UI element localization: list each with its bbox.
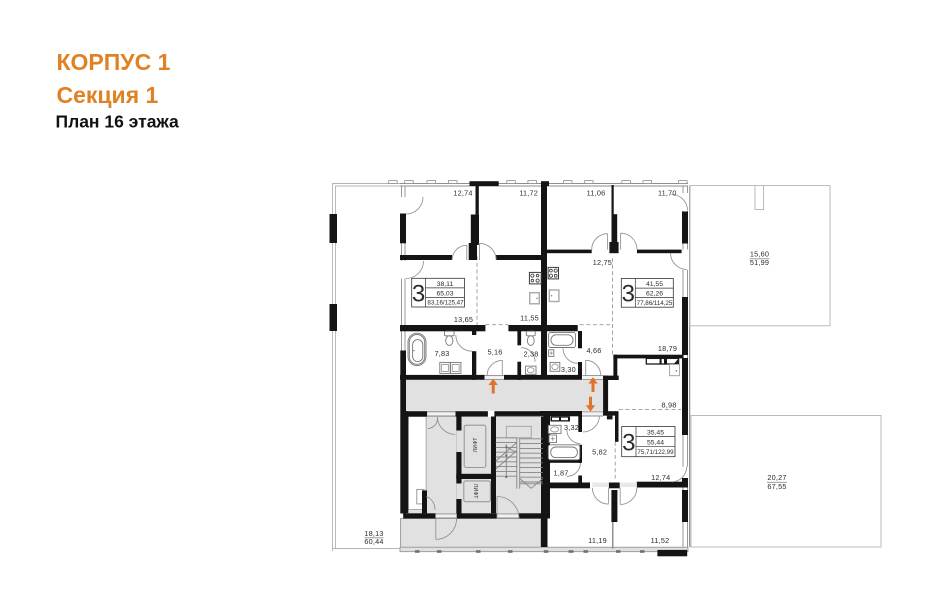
svg-text:35,45: 35,45 — [647, 429, 664, 436]
svg-text:КОРПУС 1: КОРПУС 1 — [57, 49, 171, 75]
svg-text:11,72: 11,72 — [519, 189, 538, 198]
svg-text:12,74: 12,74 — [651, 473, 670, 482]
svg-text:Секция 1: Секция 1 — [57, 82, 159, 108]
svg-text:18,79: 18,79 — [658, 344, 677, 353]
svg-text:3,32: 3,32 — [564, 423, 579, 432]
svg-text:ЛИФТ: ЛИФТ — [473, 437, 479, 452]
svg-text:2,38: 2,38 — [523, 350, 538, 359]
svg-text:ЛИФТ: ЛИФТ — [472, 484, 478, 499]
svg-text:11,19: 11,19 — [588, 536, 607, 545]
svg-text:12,75: 12,75 — [593, 258, 612, 267]
svg-text:План 16 этажа: План 16 этажа — [56, 112, 180, 132]
svg-text:41,55: 41,55 — [646, 281, 663, 288]
svg-text:3: 3 — [412, 281, 425, 308]
svg-text:3: 3 — [622, 281, 635, 308]
svg-text:67,55: 67,55 — [767, 482, 786, 491]
svg-text:4,66: 4,66 — [586, 346, 601, 355]
svg-text:7,83: 7,83 — [434, 349, 449, 358]
svg-text:11,06: 11,06 — [587, 189, 606, 198]
svg-text:38,11: 38,11 — [437, 281, 454, 288]
svg-text:62,26: 62,26 — [646, 291, 663, 298]
svg-text:11,70: 11,70 — [658, 189, 677, 198]
svg-text:13,65: 13,65 — [454, 315, 473, 324]
svg-text:11,52: 11,52 — [651, 536, 670, 545]
svg-text:3,30: 3,30 — [561, 365, 576, 374]
svg-text:75,71/122,99: 75,71/122,99 — [637, 449, 674, 456]
svg-text:20,27: 20,27 — [767, 473, 786, 482]
svg-text:12,74: 12,74 — [453, 189, 472, 198]
svg-text:65,03: 65,03 — [436, 291, 453, 298]
svg-text:83,16/125,47: 83,16/125,47 — [427, 300, 464, 307]
svg-text:77,86/114,25: 77,86/114,25 — [637, 300, 673, 307]
svg-text:1,87: 1,87 — [553, 469, 568, 478]
svg-text:5,16: 5,16 — [487, 348, 502, 357]
svg-text:8,98: 8,98 — [661, 401, 676, 410]
svg-text:3: 3 — [622, 430, 635, 457]
svg-text:55,44: 55,44 — [647, 440, 664, 447]
svg-text:5,82: 5,82 — [592, 448, 607, 457]
svg-text:11,55: 11,55 — [520, 314, 539, 323]
